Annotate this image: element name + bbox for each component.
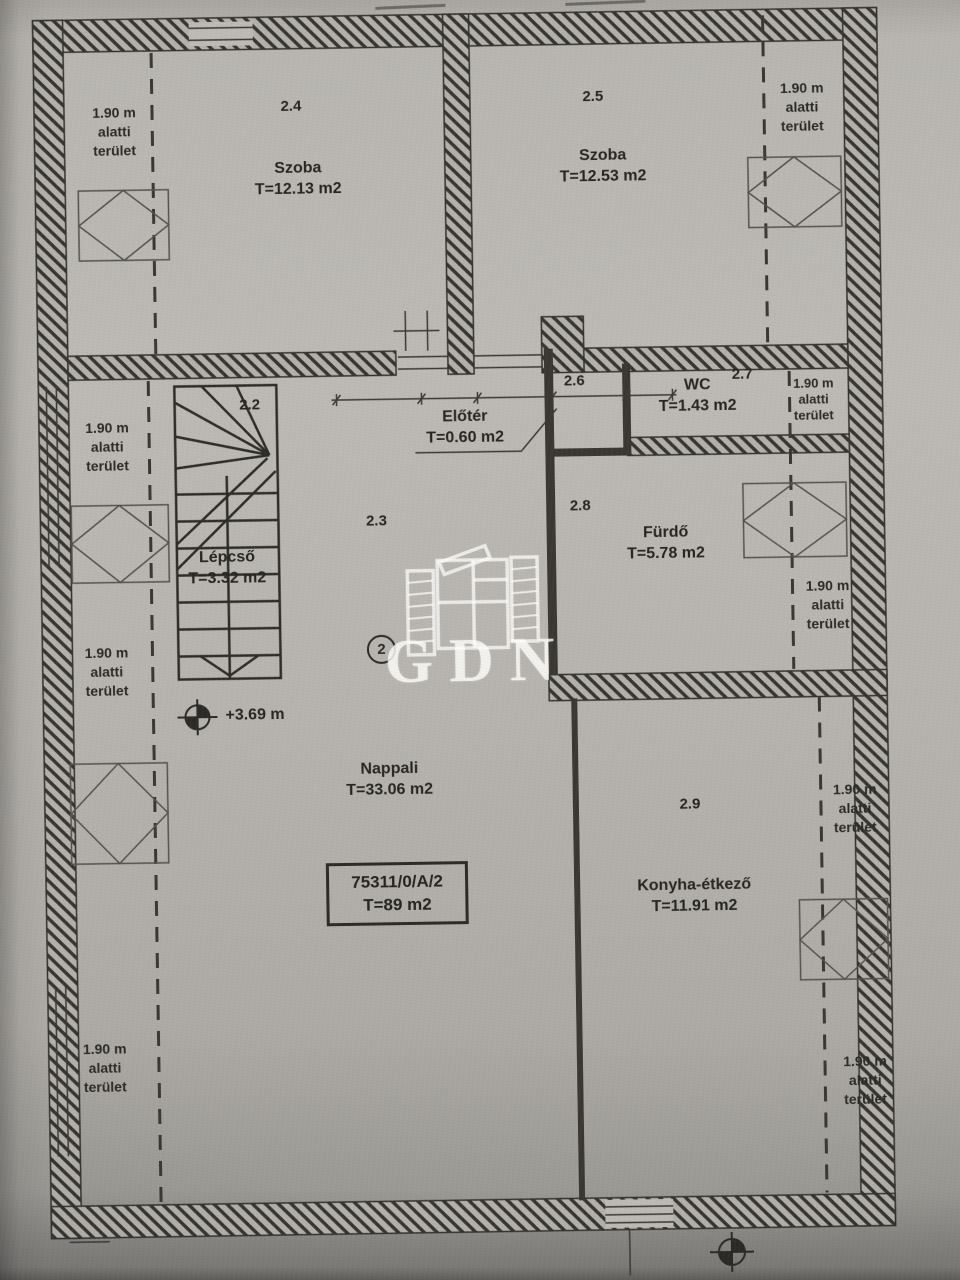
room-number-2-9: 2.9 (679, 795, 700, 812)
staircase (174, 385, 281, 680)
low-height-note: 1.90 malattiterület (85, 643, 129, 701)
room-number-2-3: 2.3 (366, 512, 387, 529)
low-height-note: 1.90 malattiterület (833, 780, 877, 838)
unit-id-box: 75311/0/A/2 T=89 m2 (326, 861, 469, 926)
room-label-szoba-left: Szoba T=12.13 m2 (254, 157, 341, 200)
kitchen-west-wall (571, 698, 585, 1200)
gdn-watermark-text: GDN (384, 624, 571, 698)
window-diamond-icon (743, 482, 847, 558)
window-diamond-icon (748, 156, 842, 227)
window-diamond-icon (78, 190, 169, 261)
room-name: Konyha-étkező (637, 874, 751, 897)
window-diamond-icon (71, 505, 169, 584)
low-height-note: 1.90 malattiterület (92, 103, 136, 161)
low-height-note: 1.90 malattiterület (83, 1039, 127, 1097)
room-number-2-5: 2.5 (582, 88, 603, 105)
room-area: T=3.32 m2 (188, 567, 266, 589)
room-number-2-4: 2.4 (280, 98, 301, 115)
unit-lot-number: 75311/0/A/2 (331, 869, 463, 894)
room-name: Fürdő (627, 521, 705, 543)
scanned-floorplan-page: 2.4 2.5 2.2 2.3 2.6 2.7 2.8 2.9 Szoba T=… (0, 0, 960, 1280)
room-area: T=33.06 m2 (346, 779, 433, 801)
room-label-nappali: Nappali T=33.06 m2 (346, 758, 433, 801)
low-height-note: 1.90 malattiterület (806, 576, 850, 634)
room-name: Előtér (426, 405, 504, 427)
low-height-note: 1.90 malattiterület (780, 78, 824, 136)
level-marker-icon (710, 1232, 755, 1273)
room-number-2-2: 2.2 (239, 396, 260, 413)
room-name: WC (658, 374, 736, 396)
level-mark-label: +3.69 m (225, 706, 284, 725)
room-area: T=1.43 m2 (659, 395, 737, 417)
room-area: T=12.53 m2 (560, 165, 647, 187)
wc-south-wall (627, 434, 849, 455)
room-area: T=12.13 m2 (255, 178, 342, 200)
wall-between-szoba-rooms (442, 14, 474, 374)
scan-remnants (375, 1, 645, 8)
level-marker-icon (177, 699, 218, 736)
room-name: Szoba (254, 157, 341, 179)
room-area: T=11.91 m2 (637, 895, 751, 918)
low-height-note: 1.90 malattiterület (85, 418, 129, 476)
room-label-eloter: Előtér T=0.60 m2 (426, 405, 504, 448)
room-label-furdo: Fürdő T=5.78 m2 (627, 521, 705, 564)
room-label-lepcso: Lépcső T=3.32 m2 (188, 546, 266, 589)
low-height-note: 1.90 malattiterület (793, 375, 834, 424)
room-label-konyha: Konyha-étkező T=11.91 m2 (637, 874, 751, 918)
room-area: T=0.60 m2 (426, 426, 504, 448)
room-name: Lépcső (188, 546, 266, 568)
headroom-dashed-lines (143, 15, 827, 1203)
bathroom-south-wall (549, 669, 887, 700)
room-label-wc: WC T=1.43 m2 (658, 374, 736, 417)
room-label-szoba-right: Szoba T=12.53 m2 (559, 144, 646, 187)
floor-plan: 2.4 2.5 2.2 2.3 2.6 2.7 2.8 2.9 Szoba T=… (0, 0, 960, 1280)
unit-total-area: T=89 m2 (331, 892, 463, 917)
room-area: T=5.78 m2 (627, 542, 705, 564)
room-name: Nappali (346, 758, 433, 780)
room-number-2-8: 2.8 (570, 497, 591, 514)
room-name: Szoba (559, 144, 646, 166)
low-height-note: 1.90 malattiterület (843, 1052, 887, 1110)
room-number-2-6: 2.6 (564, 372, 585, 389)
partition-walls (544, 347, 643, 1200)
